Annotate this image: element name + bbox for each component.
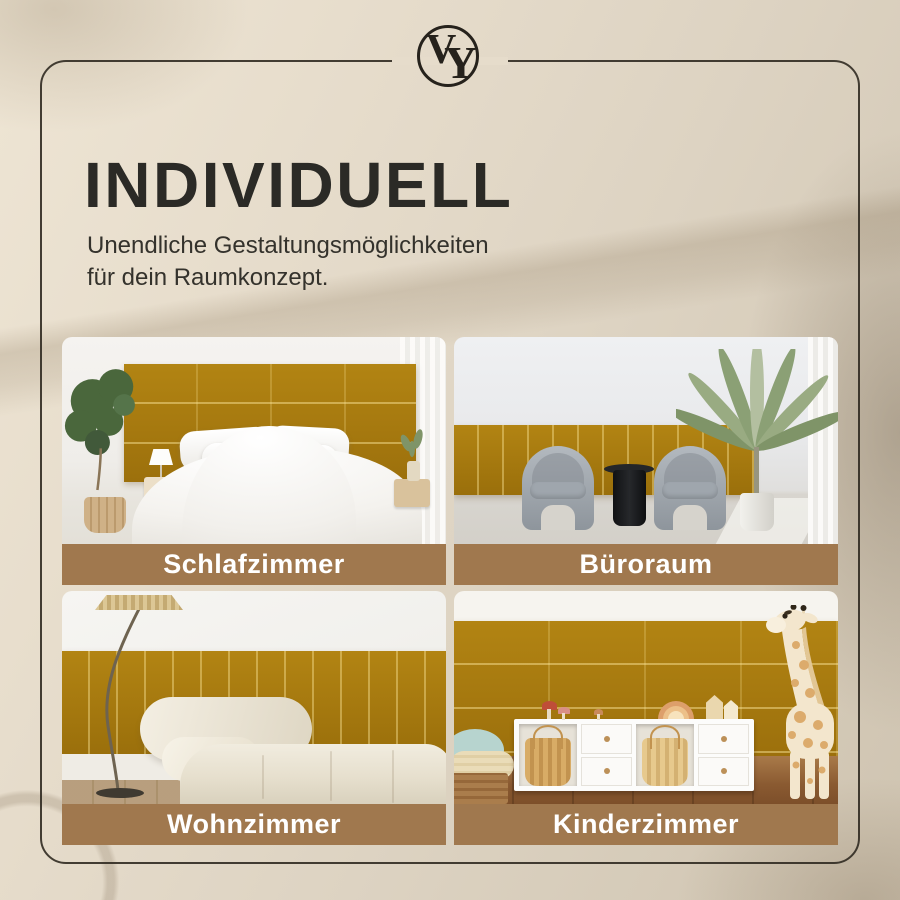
mushroom-stem <box>562 713 565 720</box>
wohnzimmer-photo <box>62 591 446 804</box>
room-card-bueroraum: Büroraum <box>454 337 838 585</box>
palm-plant-icon <box>676 349 838 501</box>
mushroom-stem <box>547 709 551 719</box>
room-caption-wohnzimmer: Wohnzimmer <box>62 804 446 845</box>
lounge-chair-seat <box>180 744 446 804</box>
console-cubby <box>519 724 577 786</box>
console-drawers <box>581 724 632 786</box>
room-caption-schlafzimmer: Schlafzimmer <box>62 544 446 585</box>
room-caption-kinderzimmer: Kinderzimmer <box>454 804 838 845</box>
room-caption-bueroraum: Büroraum <box>454 544 838 585</box>
mushroom-stem <box>597 714 600 720</box>
page-title: INDIVIDUELL <box>84 148 513 222</box>
giraffe-plush-icon <box>752 605 836 801</box>
console-cubby <box>636 724 694 786</box>
plant-pot <box>740 493 774 531</box>
room-grid: Schlafzimmer <box>62 337 838 845</box>
armchair <box>522 446 594 530</box>
potted-plant-icon <box>64 355 150 505</box>
kinderzimmer-photo <box>454 591 838 804</box>
wicker-basket <box>454 773 508 804</box>
vase <box>407 461 420 481</box>
room-card-wohnzimmer: Wohnzimmer <box>62 591 446 845</box>
side-table <box>613 470 646 526</box>
room-card-kinderzimmer: Kinderzimmer <box>454 591 838 845</box>
plant-basket <box>84 497 126 533</box>
room-card-schlafzimmer: Schlafzimmer <box>62 337 446 585</box>
white-console <box>514 719 754 791</box>
side-stool <box>394 479 430 507</box>
console-drawers <box>698 724 749 786</box>
schlafzimmer-photo <box>62 337 446 544</box>
page-subtitle: Unendliche Gestaltungsmöglichkeiten für … <box>87 230 489 294</box>
subtitle-line-1: Unendliche Gestaltungsmöglichkeiten <box>87 230 489 262</box>
brand-logo: V Y <box>417 25 479 87</box>
floor-lamp-shade-icon <box>95 595 183 610</box>
subtitle-line-2: für dein Raumkonzept. <box>87 262 489 294</box>
bueroraum-photo <box>454 337 838 544</box>
table-lamp-stem <box>160 465 162 477</box>
logo-letter-y: Y <box>444 36 477 89</box>
